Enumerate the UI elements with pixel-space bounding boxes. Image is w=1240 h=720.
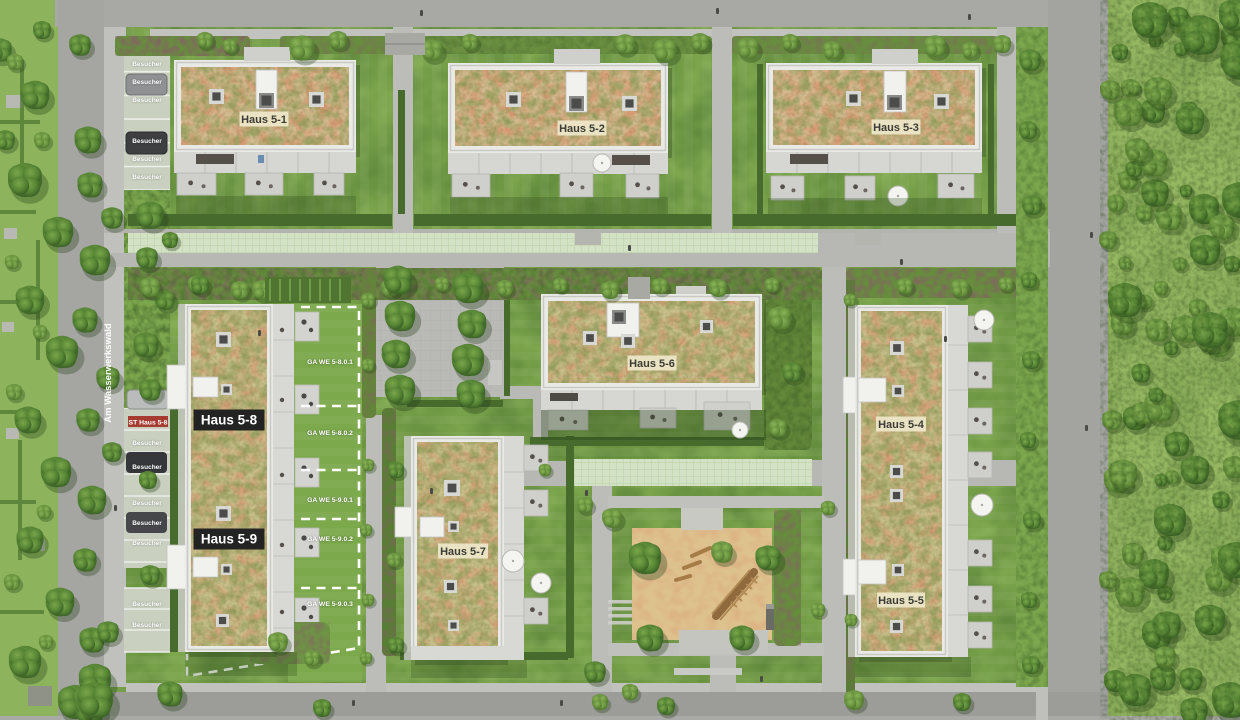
svg-text:Haus 5-8: Haus 5-8 — [201, 413, 258, 428]
svg-text:Haus 5-4: Haus 5-4 — [878, 419, 925, 431]
svg-text:Besucher: Besucher — [132, 500, 162, 507]
svg-text:Am Wasserwerkswald: Am Wasserwerkswald — [103, 323, 114, 423]
svg-text:GA WE 5-9.0.1: GA WE 5-9.0.1 — [307, 497, 353, 504]
svg-text:Besucher: Besucher — [132, 156, 162, 163]
svg-text:Haus 5-6: Haus 5-6 — [629, 358, 675, 370]
svg-text:Besucher: Besucher — [132, 174, 162, 181]
svg-text:Besucher: Besucher — [132, 61, 162, 68]
svg-text:Besucher: Besucher — [132, 97, 162, 104]
svg-text:Haus 5-2: Haus 5-2 — [559, 123, 605, 135]
svg-text:Haus 5-5: Haus 5-5 — [878, 595, 924, 607]
svg-text:GA WE 5-8.0.2: GA WE 5-8.0.2 — [307, 430, 353, 437]
svg-text:Besucher: Besucher — [132, 440, 162, 447]
svg-text:Haus 5-1: Haus 5-1 — [241, 114, 287, 126]
svg-text:Besucher: Besucher — [132, 622, 162, 629]
svg-text:Besucher: Besucher — [132, 540, 162, 547]
svg-text:GA WE 5-9.0.3: GA WE 5-9.0.3 — [307, 601, 353, 608]
svg-text:Haus 5-9: Haus 5-9 — [201, 532, 257, 547]
svg-text:Besucher: Besucher — [132, 601, 162, 608]
svg-text:Haus 5-7: Haus 5-7 — [440, 546, 486, 558]
svg-text:Haus 5-3: Haus 5-3 — [873, 122, 919, 134]
svg-text:ST Haus 5-8: ST Haus 5-8 — [129, 420, 168, 427]
svg-text:Besucher: Besucher — [132, 138, 162, 145]
svg-text:GA WE 5-8.0.1: GA WE 5-8.0.1 — [307, 359, 353, 366]
svg-text:Besucher: Besucher — [132, 520, 162, 527]
svg-text:GA WE 5-9.0.2: GA WE 5-9.0.2 — [307, 536, 353, 543]
svg-text:Besucher: Besucher — [132, 79, 162, 86]
svg-text:Besucher: Besucher — [132, 464, 162, 471]
